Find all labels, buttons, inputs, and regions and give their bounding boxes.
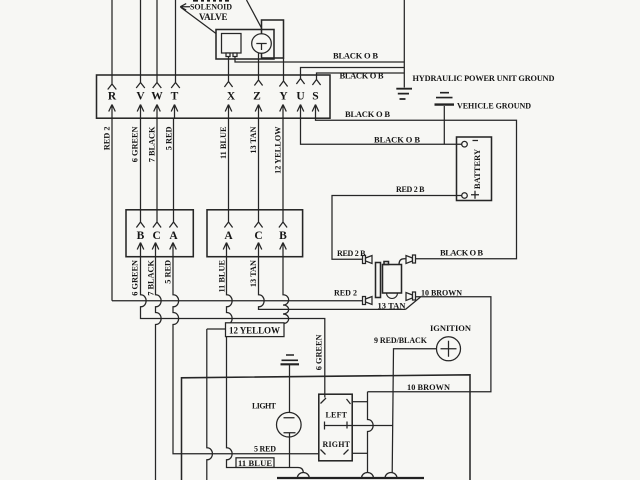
svg-text:13 TAN: 13 TAN [249, 260, 258, 287]
svg-text:10 BROWN: 10 BROWN [421, 289, 462, 298]
svg-text:5 RED: 5 RED [165, 127, 174, 151]
svg-text:C: C [254, 230, 262, 242]
svg-text:Z: Z [253, 91, 261, 103]
svg-text:A: A [224, 230, 233, 242]
svg-text:LIGHT: LIGHT [252, 402, 277, 411]
svg-text:BLACK O B: BLACK O B [345, 109, 390, 119]
svg-text:BLACK O B: BLACK O B [440, 248, 483, 258]
svg-text:SOLENOID: SOLENOID [190, 3, 232, 12]
svg-text:C: C [152, 230, 160, 242]
svg-text:BATTERY: BATTERY [472, 149, 482, 189]
svg-text:RED 2: RED 2 [334, 289, 357, 298]
svg-text:12 YELLOW: 12 YELLOW [273, 126, 282, 174]
svg-text:B: B [137, 230, 145, 242]
svg-text:X: X [227, 91, 236, 103]
svg-text:6 GREEN: 6 GREEN [130, 260, 139, 296]
svg-text:BLACK O B: BLACK O B [333, 51, 378, 61]
svg-text:RIGHT: RIGHT [323, 440, 351, 449]
svg-text:B: B [279, 230, 287, 242]
svg-text:BLACK O B: BLACK O B [340, 71, 384, 81]
svg-text:R: R [108, 91, 117, 103]
svg-text:A: A [169, 230, 178, 242]
svg-text:7 BLACK: 7 BLACK [147, 126, 156, 162]
svg-text:RED 2 B: RED 2 B [337, 249, 366, 258]
svg-text:5 RED: 5 RED [254, 445, 276, 454]
svg-text:VEHICLE GROUND: VEHICLE GROUND [457, 102, 531, 111]
svg-text:HYDRAULIC POWER UNIT GROUND: HYDRAULIC POWER UNIT GROUND [413, 74, 555, 83]
svg-text:6 GREEN: 6 GREEN [131, 126, 140, 162]
svg-text:11 BLUE: 11 BLUE [217, 260, 226, 293]
svg-text:T: T [171, 91, 179, 103]
svg-text:Y: Y [279, 91, 288, 103]
svg-text:RED 2: RED 2 [102, 127, 111, 151]
svg-text:VALVE: VALVE [199, 12, 228, 22]
svg-text:RED 2 B: RED 2 B [396, 185, 425, 194]
svg-text:5 RED: 5 RED [163, 260, 172, 284]
svg-text:7 BLACK: 7 BLACK [146, 259, 155, 295]
svg-text:U: U [296, 91, 305, 103]
svg-text:13 TAN: 13 TAN [378, 301, 407, 311]
svg-text:9 RED/BLACK: 9 RED/BLACK [374, 336, 428, 345]
svg-text:IGNITION: IGNITION [430, 323, 472, 333]
svg-text:6 GREEN: 6 GREEN [314, 334, 323, 370]
svg-text:V: V [136, 91, 145, 103]
svg-text:11 BLUE: 11 BLUE [219, 126, 228, 159]
svg-text:13 TAN: 13 TAN [249, 126, 258, 153]
svg-text:BLACK O B: BLACK O B [374, 135, 420, 145]
svg-text:W: W [151, 91, 163, 103]
svg-text:LEFT: LEFT [326, 411, 348, 420]
svg-text:12 YELLOW: 12 YELLOW [229, 326, 280, 336]
svg-text:S: S [312, 91, 318, 103]
svg-text:10 BROWN: 10 BROWN [407, 383, 450, 392]
svg-text:11 BLUE: 11 BLUE [238, 458, 272, 468]
